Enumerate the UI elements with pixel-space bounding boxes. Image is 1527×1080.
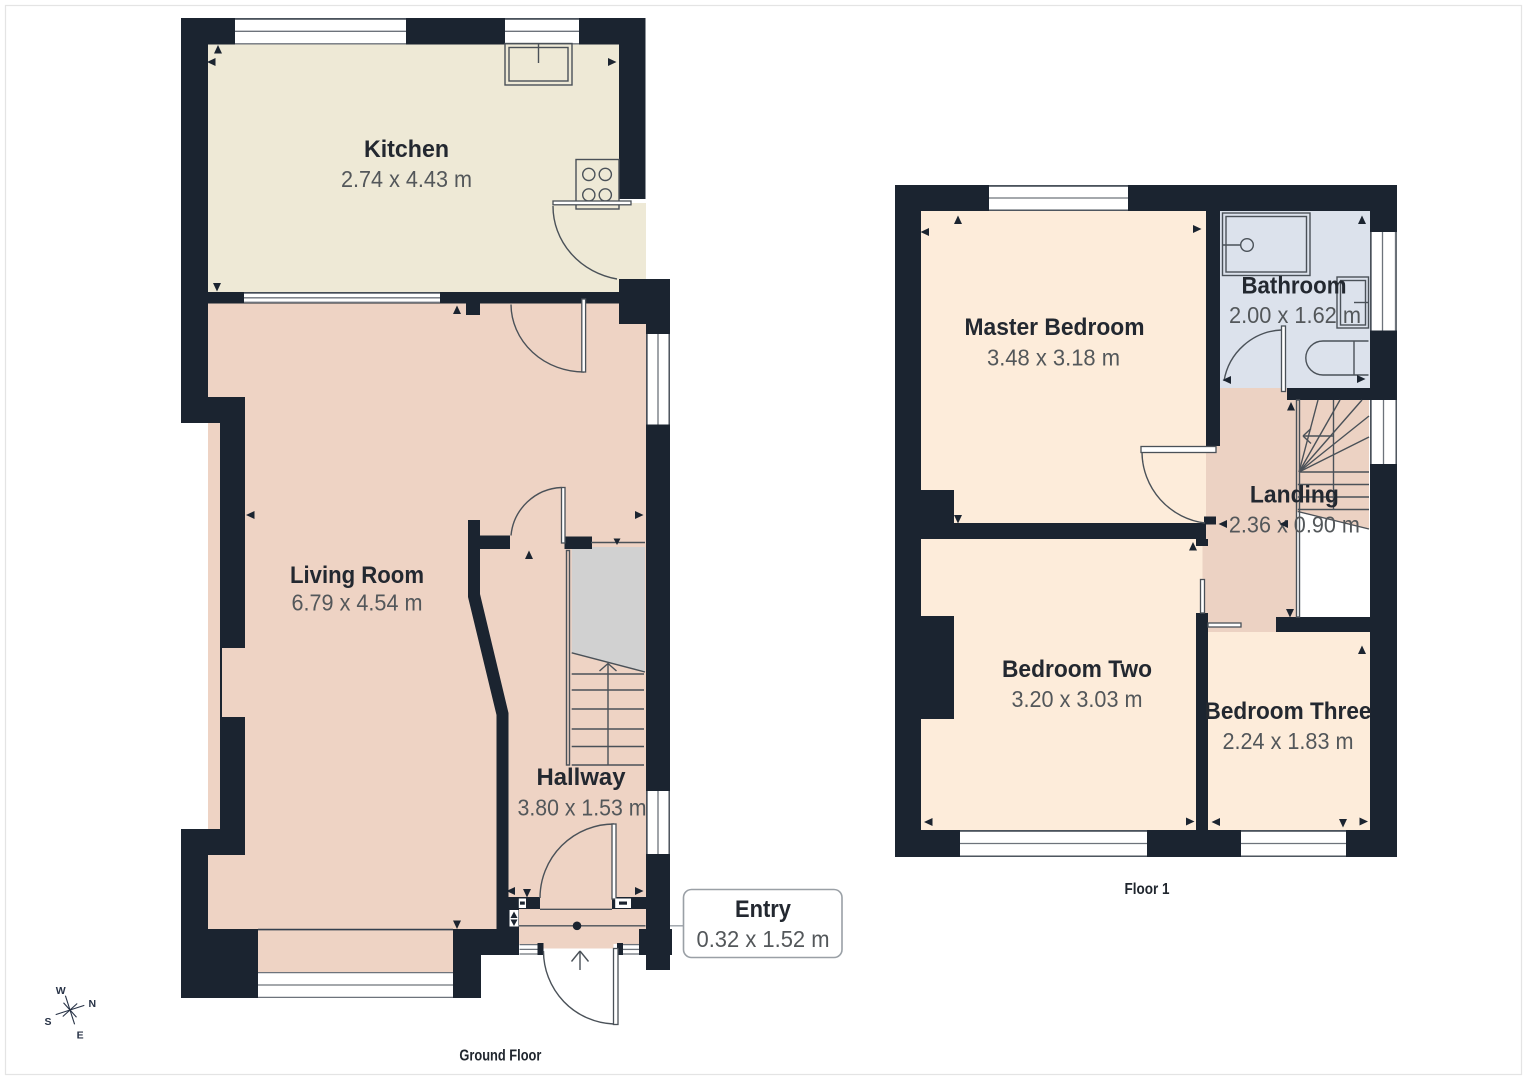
svg-text:Landing: Landing xyxy=(1250,482,1339,509)
svg-text:Entry: Entry xyxy=(735,896,792,923)
svg-text:Floor 1: Floor 1 xyxy=(1125,881,1170,898)
svg-text:2.36 x 0.90 m: 2.36 x 0.90 m xyxy=(1229,512,1360,538)
svg-text:S: S xyxy=(44,1016,51,1028)
svg-text:2.00 x 1.62 m: 2.00 x 1.62 m xyxy=(1229,302,1361,328)
svg-text:2.74 x 4.43 m: 2.74 x 4.43 m xyxy=(341,166,472,192)
svg-text:Hallway: Hallway xyxy=(537,764,627,791)
svg-text:Bathroom: Bathroom xyxy=(1242,273,1347,300)
svg-text:0.32 x 1.52 m: 0.32 x 1.52 m xyxy=(697,926,830,952)
svg-text:Master Bedroom: Master Bedroom xyxy=(965,314,1145,341)
svg-text:W: W xyxy=(56,985,66,997)
svg-text:N: N xyxy=(89,998,97,1010)
svg-text:3.80 x 1.53 m: 3.80 x 1.53 m xyxy=(518,795,647,821)
svg-text:Bedroom Three: Bedroom Three xyxy=(1205,698,1372,725)
svg-text:3.48 x 3.18 m: 3.48 x 3.18 m xyxy=(987,345,1120,371)
svg-text:3.20 x 3.03 m: 3.20 x 3.03 m xyxy=(1012,686,1143,712)
svg-text:Bedroom Two: Bedroom Two xyxy=(1002,656,1152,683)
svg-text:Kitchen: Kitchen xyxy=(364,136,449,163)
svg-text:Living Room: Living Room xyxy=(290,562,424,589)
svg-text:2.24 x 1.83 m: 2.24 x 1.83 m xyxy=(1223,728,1354,754)
svg-text:Ground Floor: Ground Floor xyxy=(459,1048,541,1065)
svg-text:6.79 x 4.54 m: 6.79 x 4.54 m xyxy=(292,589,423,615)
svg-text:E: E xyxy=(77,1029,84,1041)
